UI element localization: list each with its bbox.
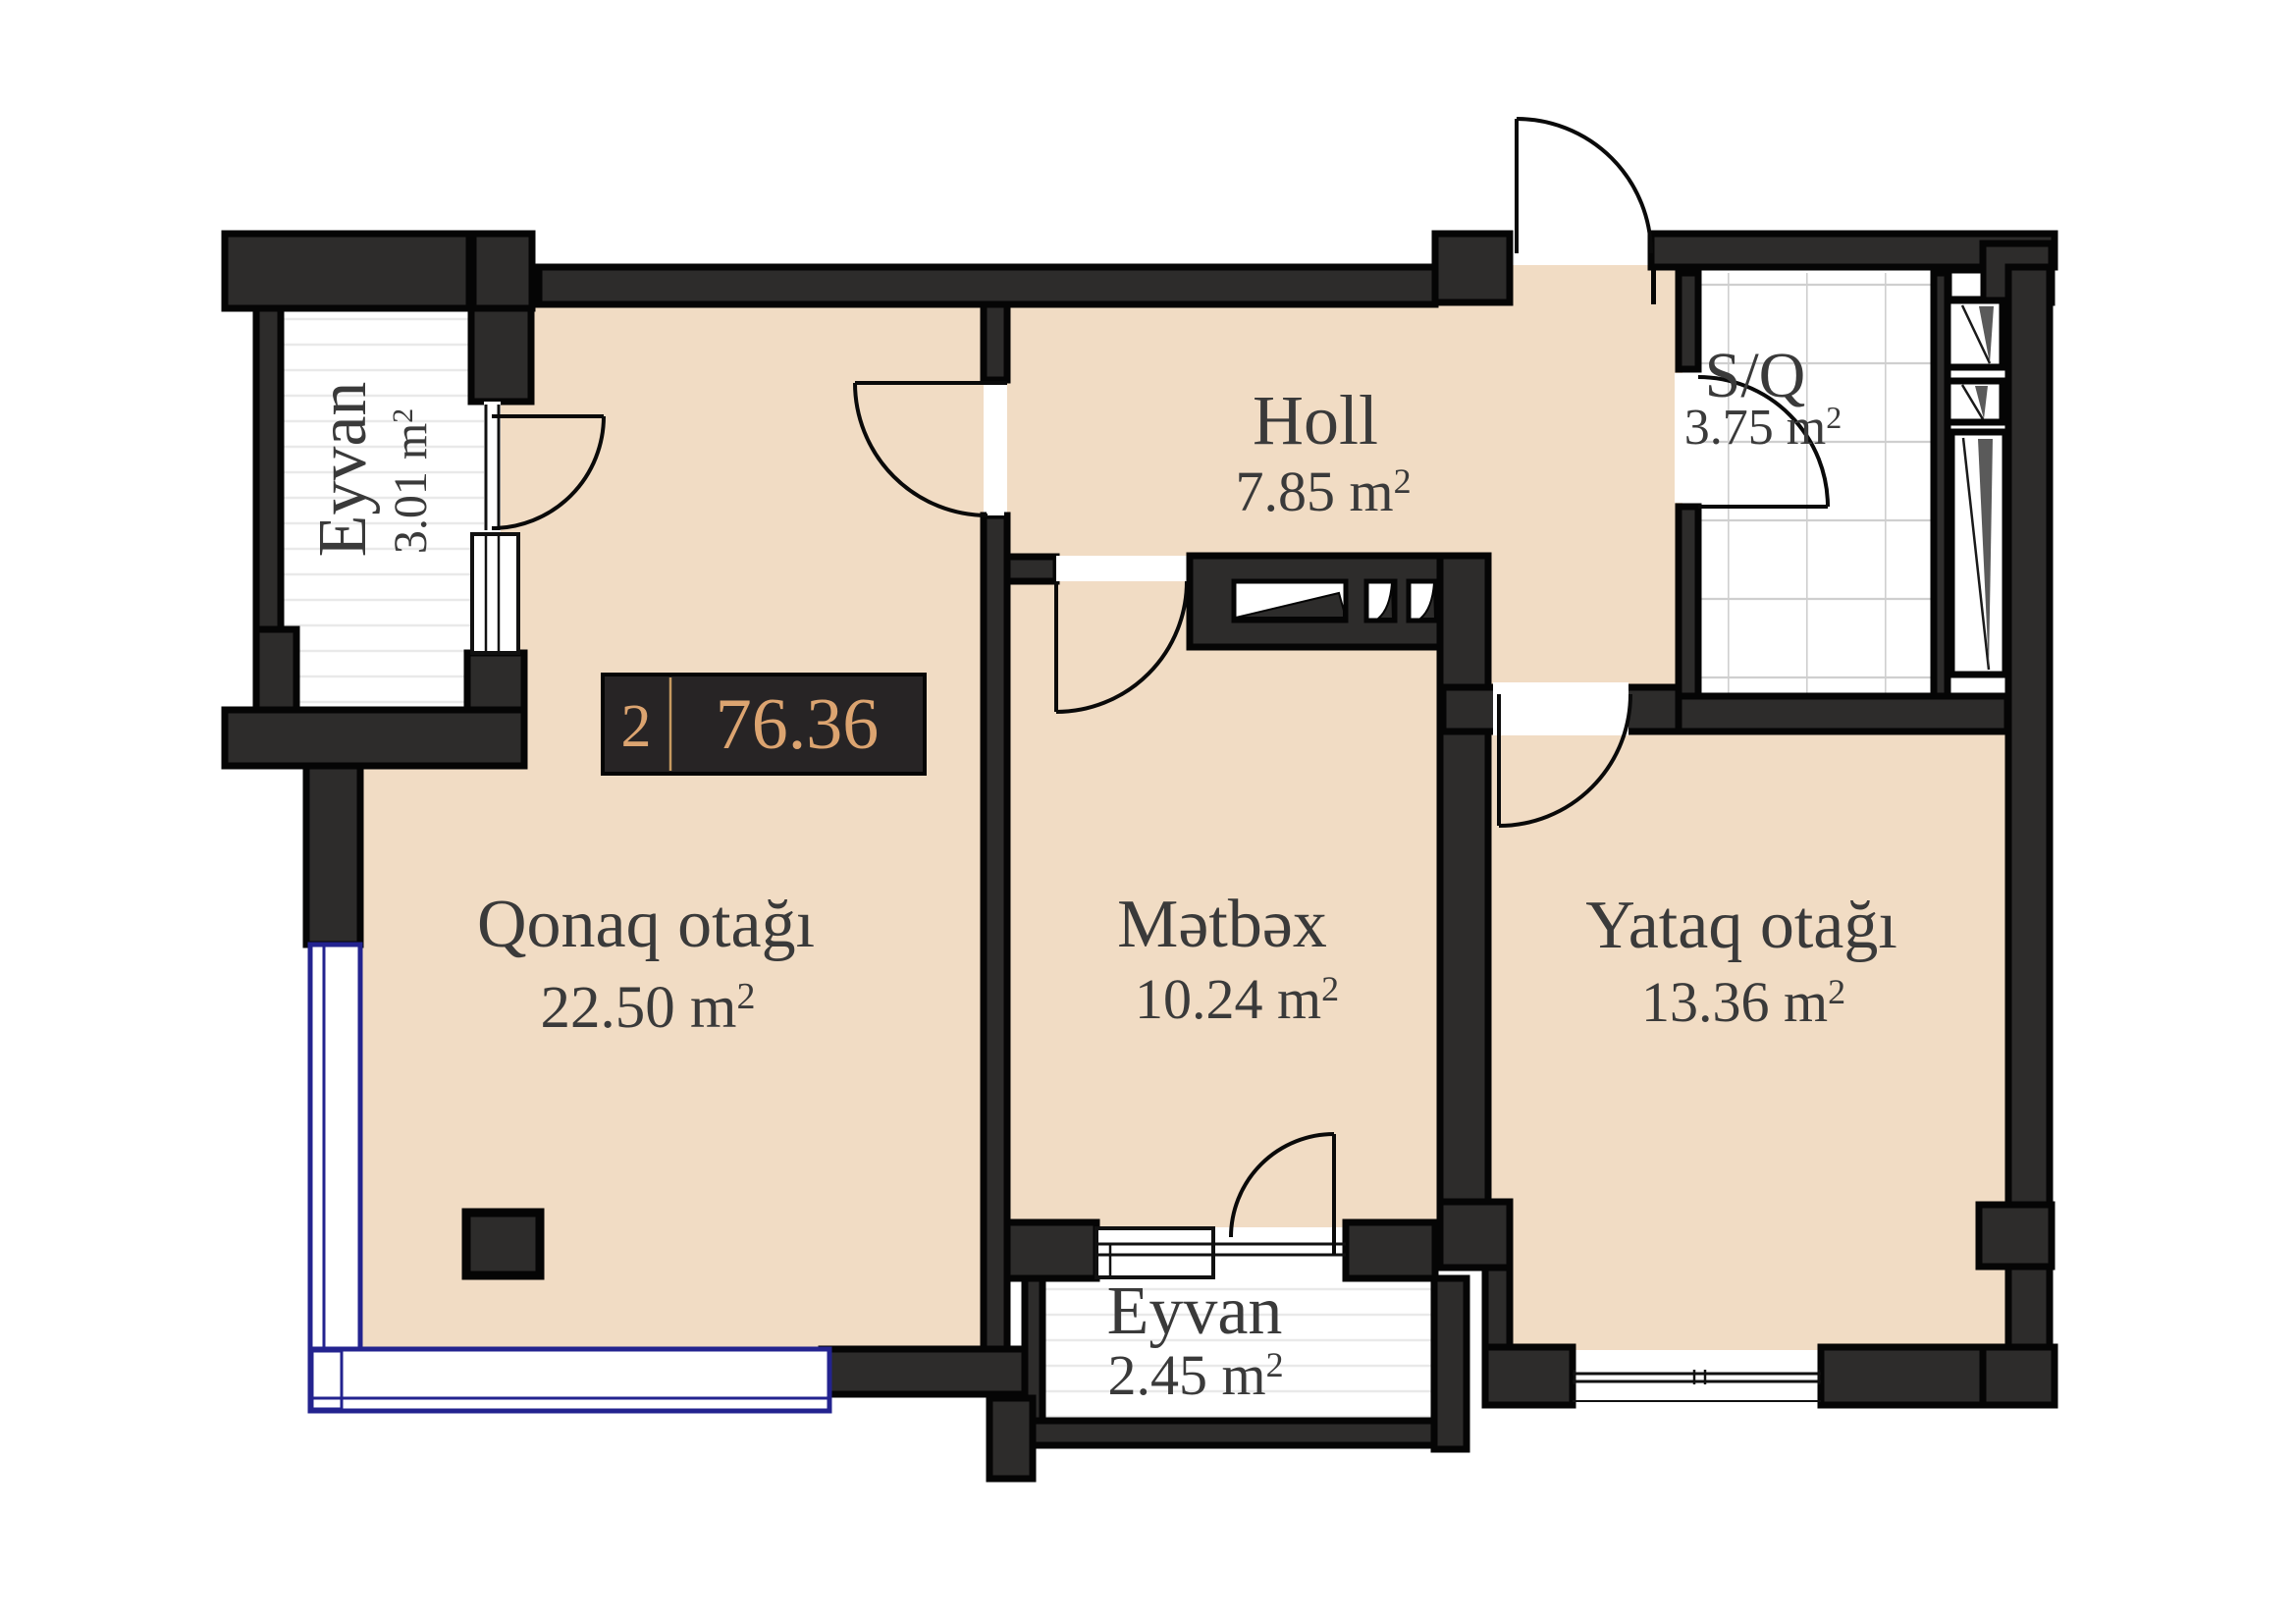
svg-text:Eyvan: Eyvan xyxy=(1107,1273,1283,1349)
svg-text:76.36: 76.36 xyxy=(716,684,880,765)
svg-text:Qonaq otağı: Qonaq otağı xyxy=(477,887,815,962)
svg-text:Yataq otağı: Yataq otağı xyxy=(1585,888,1897,963)
svg-text:3.75 m2: 3.75 m2 xyxy=(1684,400,1842,456)
svg-text:10.24 m2: 10.24 m2 xyxy=(1135,967,1339,1031)
svg-text:Holl: Holl xyxy=(1253,381,1378,460)
svg-text:Eyvan: Eyvan xyxy=(305,382,381,558)
svg-text:7.85 m2: 7.85 m2 xyxy=(1235,460,1411,523)
svg-text:2: 2 xyxy=(621,693,652,760)
svg-text:Mətbəx: Mətbəx xyxy=(1117,887,1327,962)
svg-text:22.50 m2: 22.50 m2 xyxy=(541,975,756,1041)
svg-text:13.36 m2: 13.36 m2 xyxy=(1641,970,1845,1034)
svg-text:2.45 m2: 2.45 m2 xyxy=(1107,1343,1283,1407)
svg-text:3.01 m2: 3.01 m2 xyxy=(385,408,437,554)
